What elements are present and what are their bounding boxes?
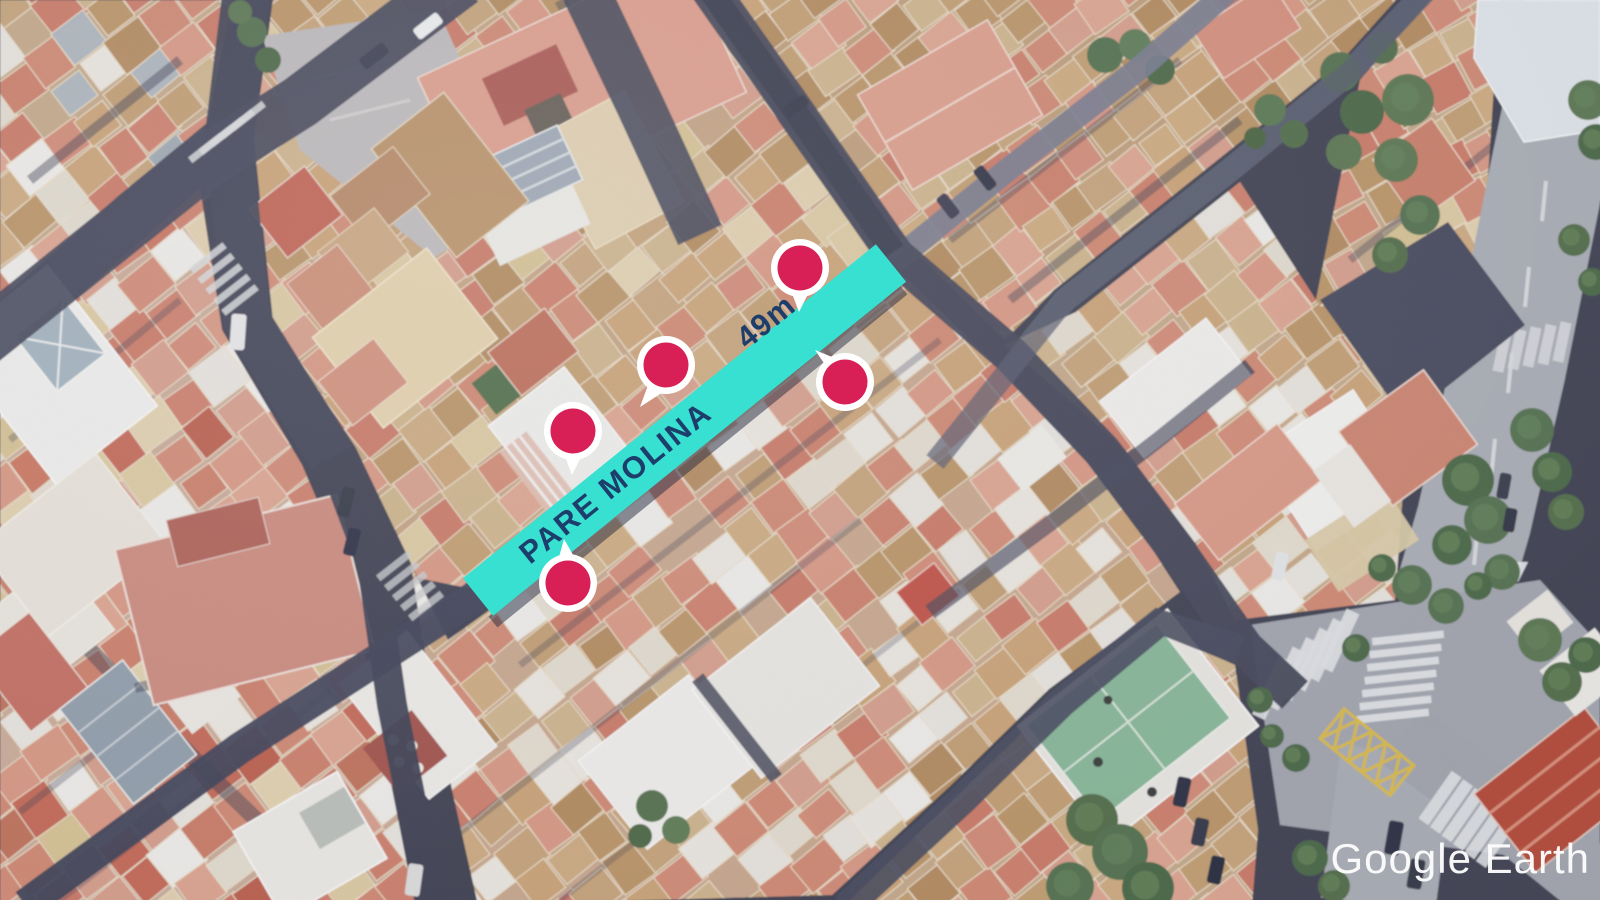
svg-text:Google Earth: Google Earth [1331, 835, 1591, 882]
